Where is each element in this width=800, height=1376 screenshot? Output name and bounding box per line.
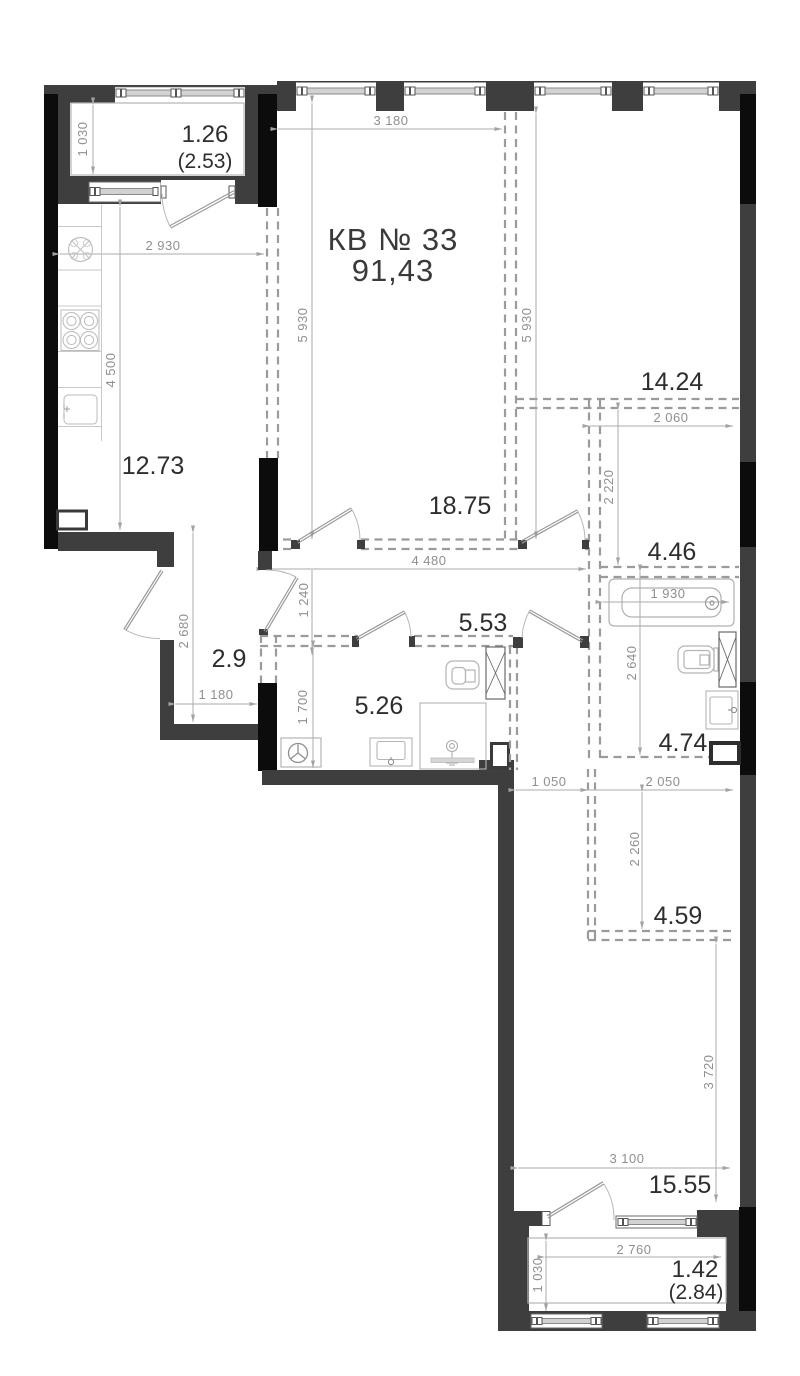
svg-text:(2.53): (2.53) xyxy=(178,150,233,173)
svg-text:4.59: 4.59 xyxy=(654,902,703,930)
svg-text:2 680: 2 680 xyxy=(176,613,191,648)
svg-text:1 180: 1 180 xyxy=(198,687,233,702)
svg-text:5 930: 5 930 xyxy=(519,307,534,342)
svg-text:2 930: 2 930 xyxy=(145,238,180,253)
svg-text:2 220: 2 220 xyxy=(601,469,616,504)
svg-text:18.75: 18.75 xyxy=(429,492,492,520)
svg-text:(2.84): (2.84) xyxy=(669,1281,724,1304)
svg-text:4.74: 4.74 xyxy=(659,729,708,757)
svg-text:2.9: 2.9 xyxy=(212,645,247,673)
svg-text:3 180: 3 180 xyxy=(373,113,408,128)
svg-text:2 260: 2 260 xyxy=(627,831,642,866)
svg-text:1 050: 1 050 xyxy=(531,774,566,789)
svg-text:2 640: 2 640 xyxy=(624,645,639,680)
svg-text:2 050: 2 050 xyxy=(645,774,680,789)
svg-text:КВ № 33: КВ № 33 xyxy=(328,222,459,257)
svg-text:4.46: 4.46 xyxy=(648,538,697,566)
svg-text:1 700: 1 700 xyxy=(295,689,310,724)
svg-text:5 930: 5 930 xyxy=(295,307,310,342)
svg-text:4 480: 4 480 xyxy=(411,553,446,568)
svg-text:2 060: 2 060 xyxy=(653,410,688,425)
svg-text:1 030: 1 030 xyxy=(75,121,90,156)
svg-text:91,43: 91,43 xyxy=(352,253,435,288)
svg-text:5.53: 5.53 xyxy=(459,609,508,637)
svg-text:15.55: 15.55 xyxy=(649,1171,712,1199)
svg-text:3 720: 3 720 xyxy=(701,1054,716,1089)
svg-text:1.42: 1.42 xyxy=(672,1256,719,1283)
svg-text:14.24: 14.24 xyxy=(641,368,704,396)
svg-text:5.26: 5.26 xyxy=(355,692,404,720)
svg-text:1 240: 1 240 xyxy=(296,582,311,617)
svg-text:3 100: 3 100 xyxy=(609,1151,644,1166)
svg-text:2 760: 2 760 xyxy=(616,1242,651,1257)
svg-text:1 930: 1 930 xyxy=(650,586,685,601)
svg-text:1 030: 1 030 xyxy=(530,1257,545,1292)
svg-text:4 500: 4 500 xyxy=(103,352,118,387)
svg-text:12.73: 12.73 xyxy=(122,452,185,480)
svg-text:1.26: 1.26 xyxy=(182,121,229,148)
